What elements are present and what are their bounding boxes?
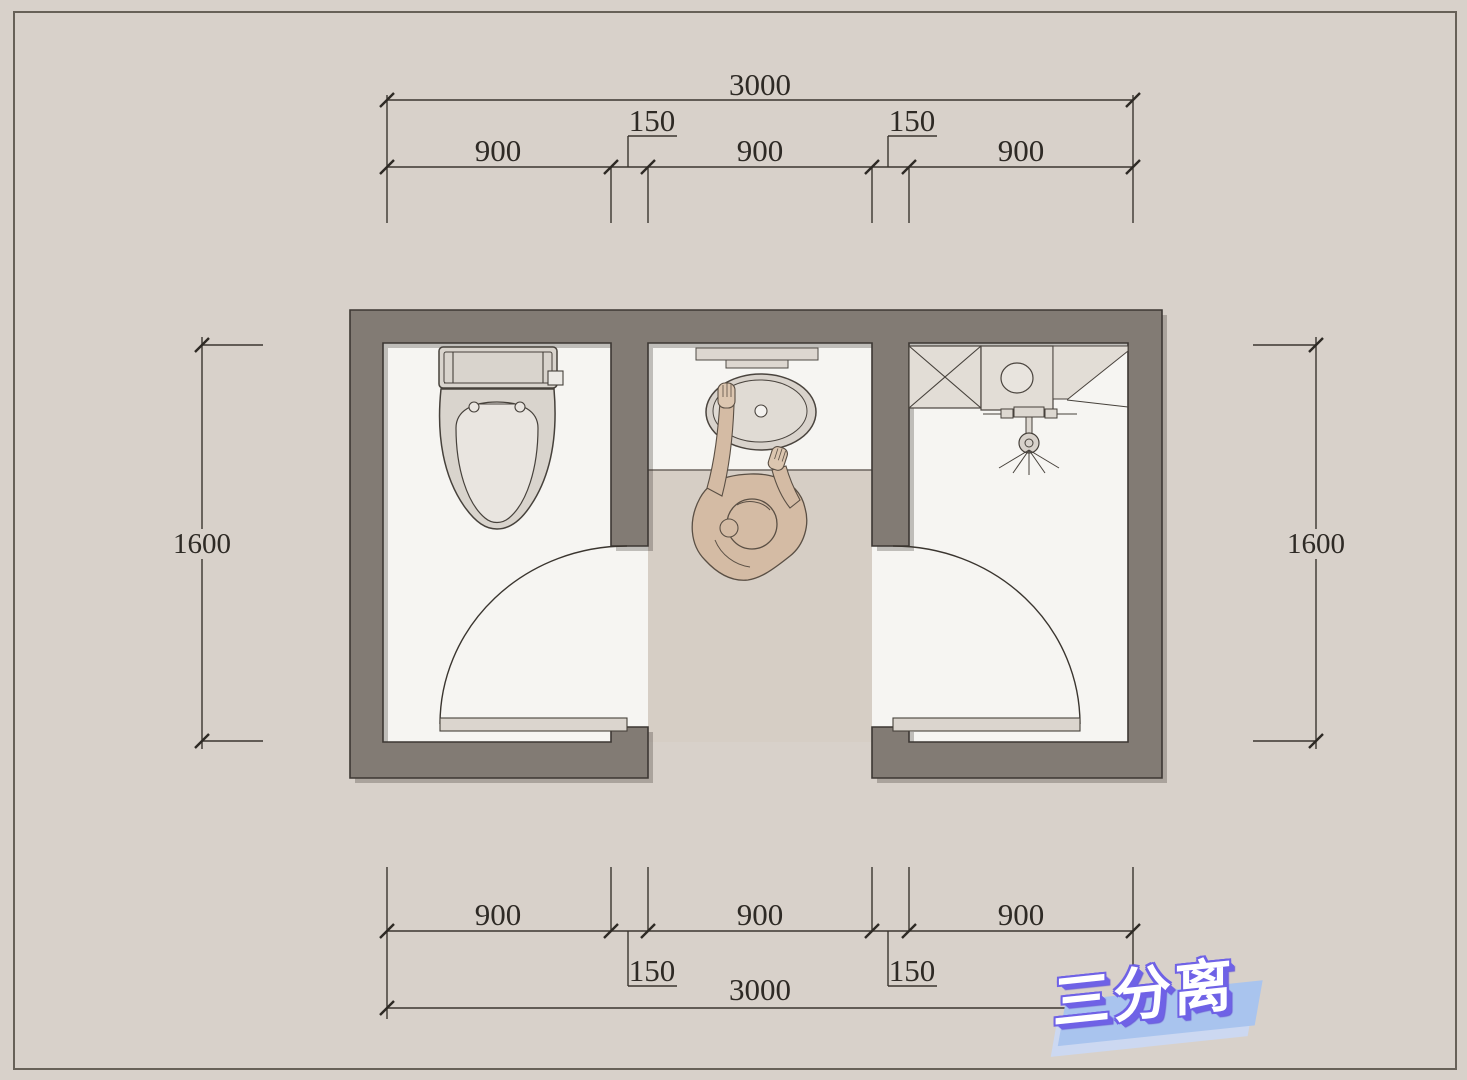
dim-bottom-inset-left: 150 (629, 953, 676, 988)
dimension-top: 3000 900 900 900 150 150 (380, 67, 1140, 223)
dim-top-left: 900 (475, 133, 522, 168)
person-left-hand (718, 383, 735, 408)
right-doorway (872, 546, 909, 742)
person-hair-bun (720, 519, 738, 537)
sink-drain (755, 405, 767, 417)
seat-hinge-left (469, 402, 479, 412)
dimension-left: 1600 (167, 337, 263, 749)
dim-bottom-overall: 3000 (729, 972, 791, 1007)
cabinet-icon (909, 346, 981, 408)
dim-bottom-inset-right: 150 (889, 953, 936, 988)
floor-plan-drawing: 3000 900 900 900 150 150 900 900 900 150… (0, 0, 1467, 1080)
mirror-shelf-small (726, 360, 788, 368)
water-heater-icon (981, 346, 1053, 410)
dim-top-center: 900 (737, 133, 784, 168)
dim-bottom-right: 900 (998, 897, 1045, 932)
dim-top-overall: 3000 (729, 67, 791, 102)
left-doorway (611, 546, 648, 742)
floor-plan-canvas: { "title": { "text": "三分离" }, "dimension… (0, 0, 1467, 1080)
dim-bottom-left: 900 (475, 897, 522, 932)
dim-top-inset-left: 150 (629, 103, 676, 138)
mirror-shelf (696, 348, 818, 360)
seat-hinge-right (515, 402, 525, 412)
right-door-leaf (893, 718, 1080, 731)
flush-button (548, 371, 563, 385)
dim-top-right: 900 (998, 133, 1045, 168)
dimension-right: 1600 (1253, 337, 1351, 749)
dim-top-inset-right: 150 (889, 103, 936, 138)
dimension-bottom: 900 900 900 150 150 3000 (380, 867, 1140, 1019)
left-door-leaf (440, 718, 627, 731)
dim-left-height: 1600 (173, 528, 231, 560)
dim-right-height: 1600 (1287, 528, 1345, 560)
dim-bottom-center: 900 (737, 897, 784, 932)
